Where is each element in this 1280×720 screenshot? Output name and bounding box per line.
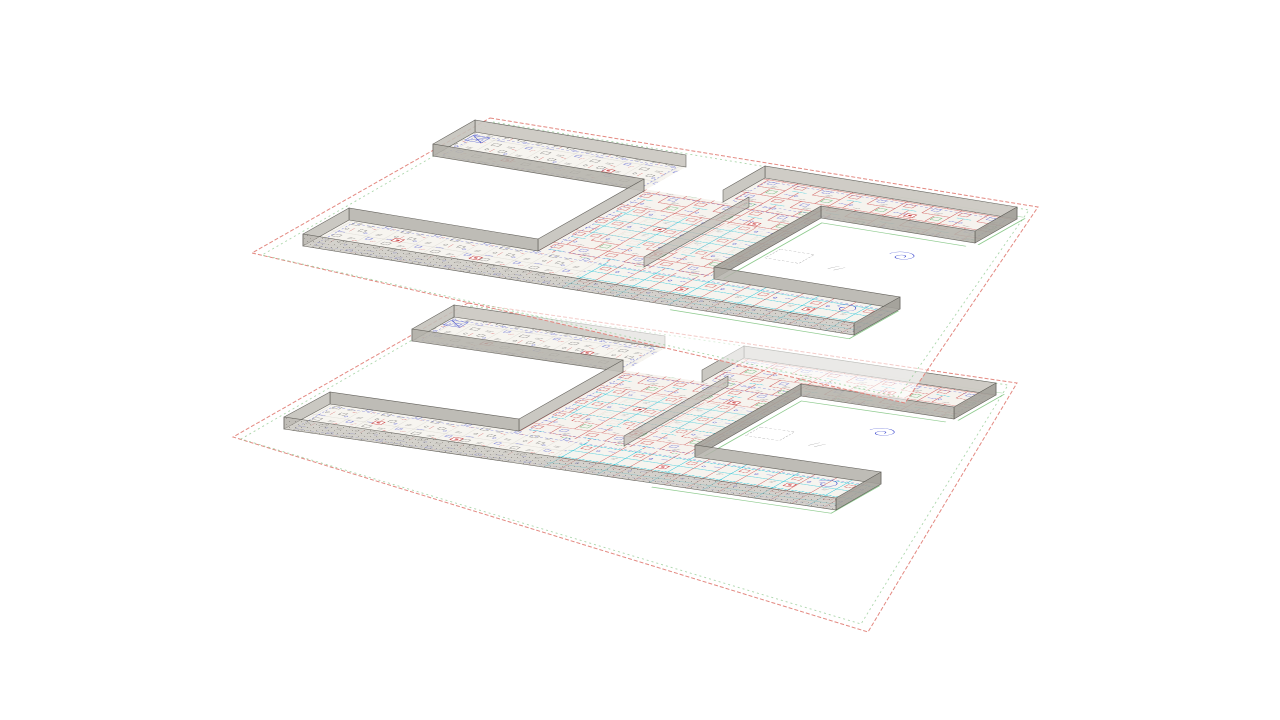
- viewport-3d[interactable]: [0, 0, 1280, 720]
- scene-canvas: [0, 0, 1280, 720]
